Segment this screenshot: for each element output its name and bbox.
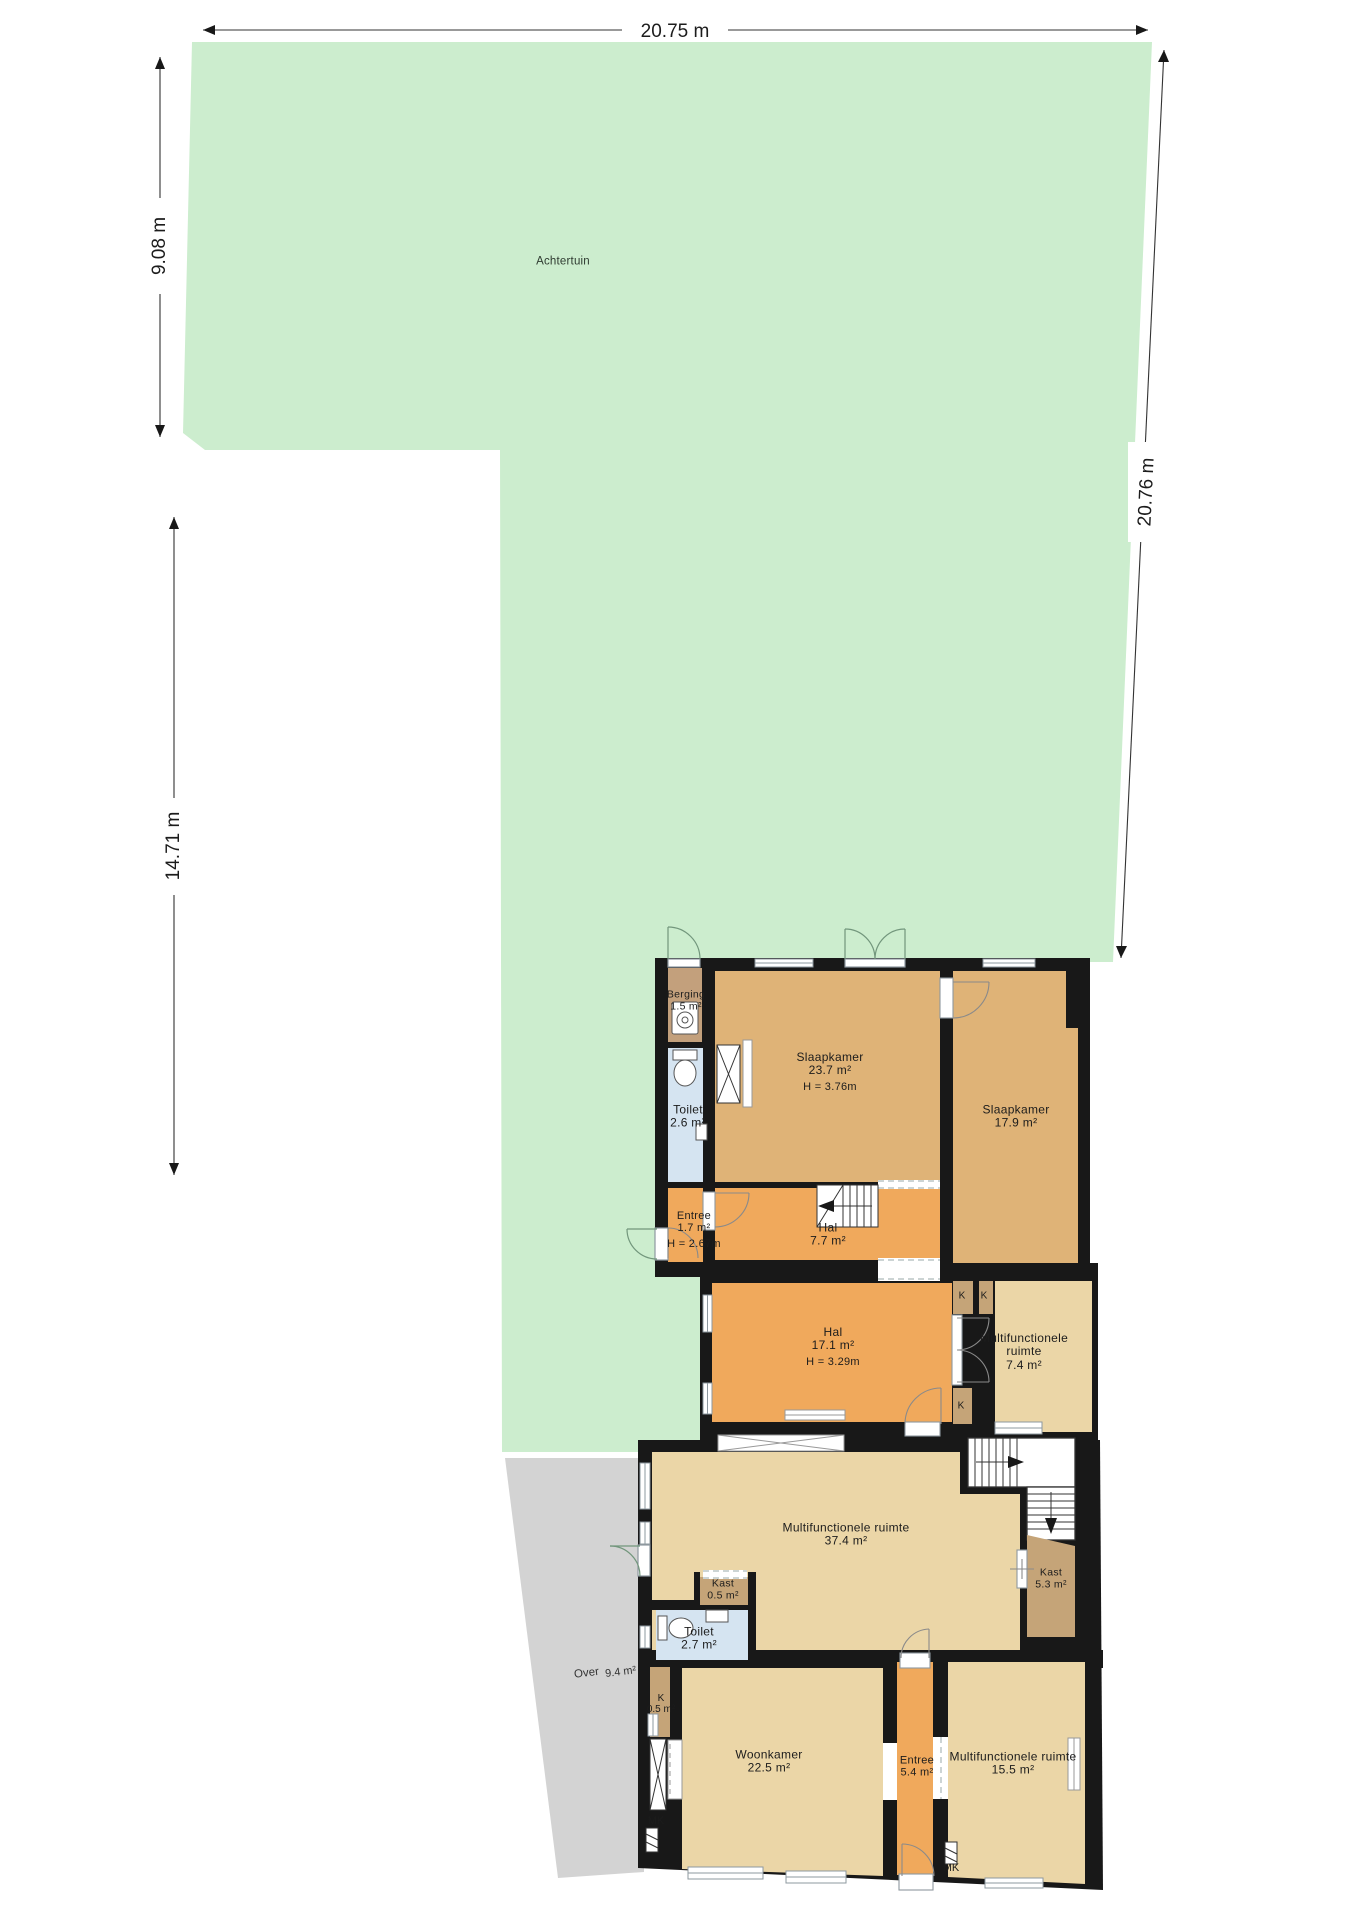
passage-woonkamer-entree xyxy=(883,1743,897,1800)
room-label-toilet-2-7: Toilet2.7 m² xyxy=(681,1626,717,1653)
room-label-kast-0-5: Kast0.5 m² xyxy=(707,1578,739,1602)
closet-label-k-b: K xyxy=(981,1290,988,1301)
room-label-mf-15-5: Multifunctionele ruimte15.5 m² xyxy=(950,1751,1077,1778)
dimension-top: 20.75 m xyxy=(641,21,710,42)
floorplan-page: 20.75 m 9.08 m 14.71 m 20.76 m Achtertui… xyxy=(0,0,1358,1920)
room-label-kast-5-3: Kast5.3 m² xyxy=(1035,1567,1067,1591)
dimension-left-lower: 14.71 m xyxy=(163,812,184,881)
room-label-mf-7-4: Multifunctionele ruimte7.4 m² xyxy=(969,1332,1079,1372)
dimension-right: 20.76 m xyxy=(1134,457,1158,527)
meter-cabinet-label-left: MK xyxy=(648,1815,665,1827)
room-label-entree-5-4: Entree5.4 m² xyxy=(900,1755,934,1780)
floorplan-drawing: 20.75 m 9.08 m 14.71 m 20.76 m xyxy=(0,0,1358,1920)
dimension-left-upper: 9.08 m xyxy=(149,217,170,275)
room-label-hal-7-7: Hal7.7 m² xyxy=(810,1222,846,1249)
room-label-woonkamer: Woonkamer22.5 m² xyxy=(735,1749,802,1776)
room-label-slaapkamer-23: Slaapkamer23.7 m²H = 3.76m xyxy=(796,1051,863,1093)
meter-cabinet-label-right: MK xyxy=(943,1862,960,1874)
room-label-mf-37-4: Multifunctionele ruimte37.4 m² xyxy=(783,1522,910,1549)
room-label-k-0-5: K0.5 m² xyxy=(647,1693,675,1715)
room-label-toilet-2-6: Toilet2.6 m² xyxy=(670,1104,706,1131)
room-label-entree-1-7: Entree1.7 m²H = 2.67m xyxy=(667,1210,721,1250)
room-label-slaapkamer-17: Slaapkamer17.9 m² xyxy=(982,1104,1049,1131)
closet-label-k-a: K xyxy=(959,1290,966,1301)
room-label-berging: Berging1.5 m² xyxy=(667,989,705,1013)
wall-notch xyxy=(1066,958,1090,1028)
garden-label: Achtertuin xyxy=(536,256,590,269)
room-label-hal-17: Hal17.1 m²H = 3.29m xyxy=(806,1326,860,1368)
closet-label-k-c: K xyxy=(958,1400,965,1411)
